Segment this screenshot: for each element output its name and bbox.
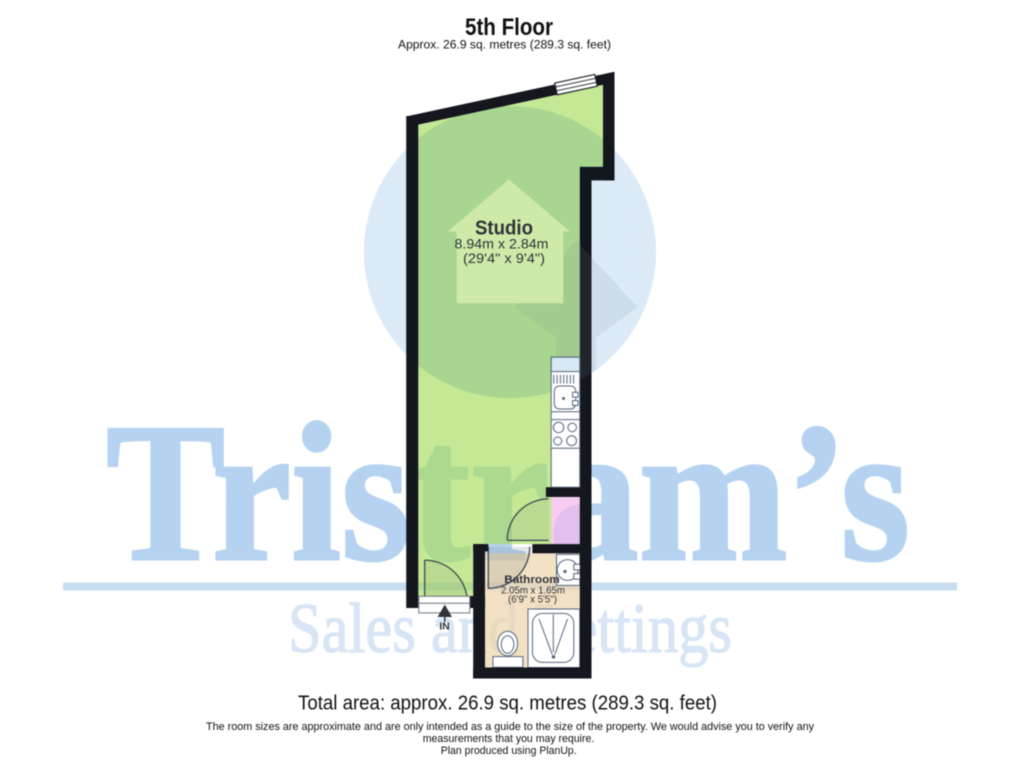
svg-text:The room sizes are approximate: The room sizes are approximate and are o… <box>206 721 814 733</box>
svg-text:measurements that you may requ: measurements that you may require. <box>423 733 595 745</box>
svg-text:8.94m x 2.84m: 8.94m x 2.84m <box>455 237 549 252</box>
svg-text:IN: IN <box>439 621 450 633</box>
svg-text:Total area: approx. 26.9 sq. m: Total area: approx. 26.9 sq. metres (289… <box>298 693 717 715</box>
svg-text:Approx. 26.9 sq. metres (289.3: Approx. 26.9 sq. metres (289.3 sq. feet) <box>398 38 611 52</box>
svg-text:(29'4" x 9'4"): (29'4" x 9'4") <box>463 251 545 266</box>
svg-text:(6'9" x 5'5"): (6'9" x 5'5") <box>508 594 557 606</box>
svg-text:Plan produced using PlanUp.: Plan produced using PlanUp. <box>441 745 577 757</box>
